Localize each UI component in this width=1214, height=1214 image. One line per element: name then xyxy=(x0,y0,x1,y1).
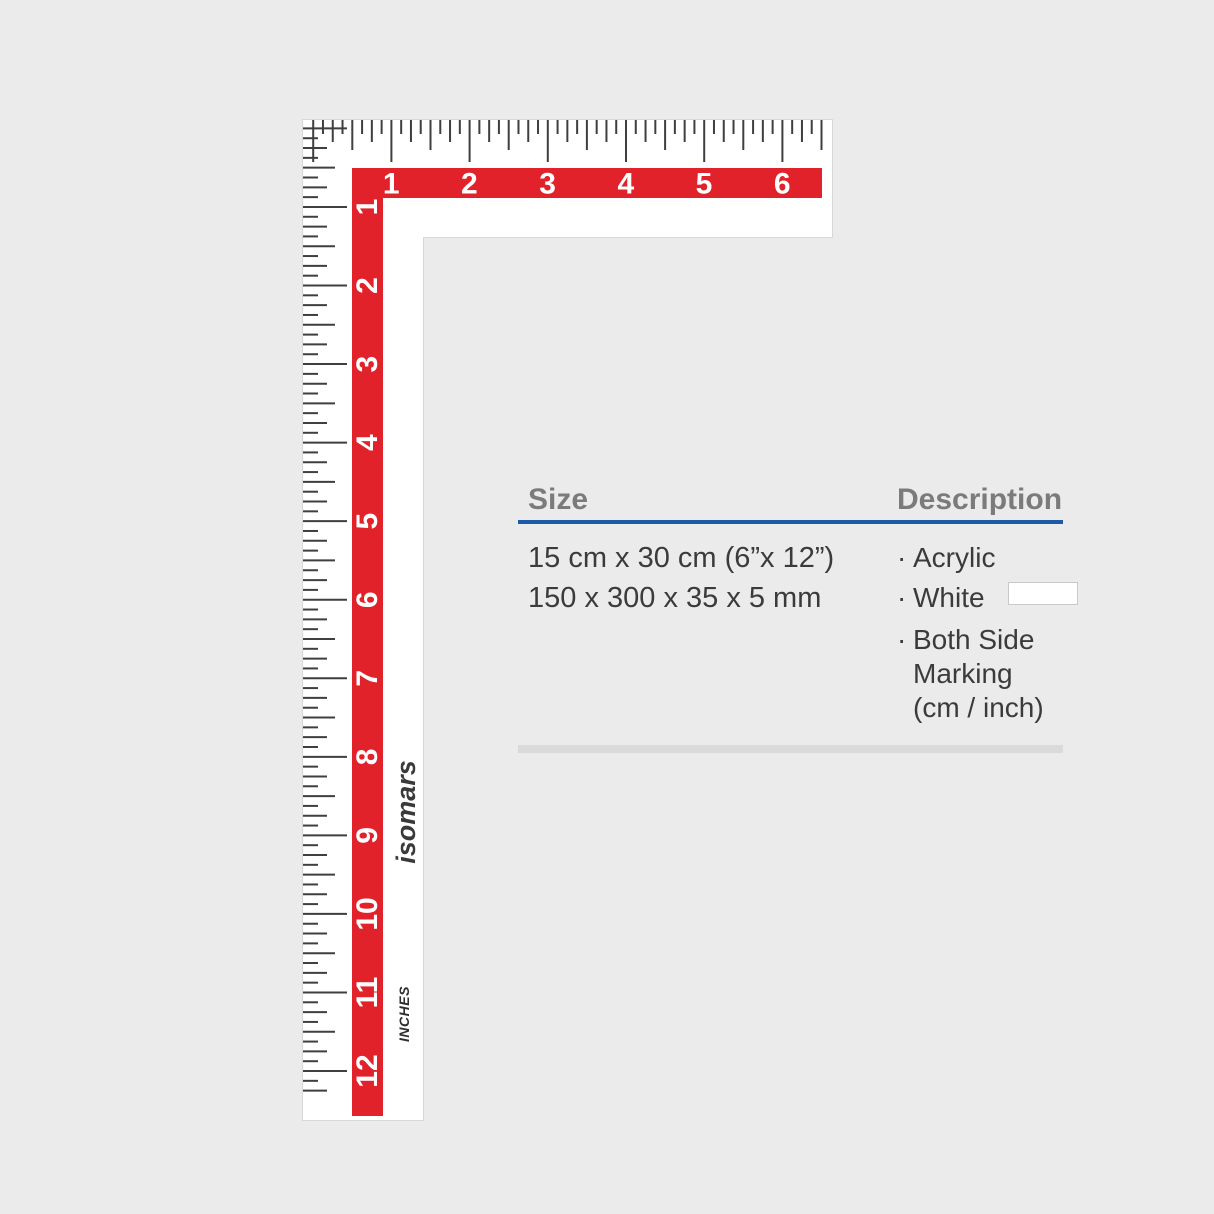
material-label: Acrylic xyxy=(913,538,995,578)
size-line-mm: 150 x 300 x 35 x 5 mm xyxy=(528,578,834,618)
brand-logo-text: isomars xyxy=(391,760,421,864)
marking-line: (cm / inch) xyxy=(913,691,1044,725)
ruler-number: 2 xyxy=(351,277,384,294)
marking-lines: Both Side Marking (cm / inch) xyxy=(913,623,1044,725)
ruler-number: 1 xyxy=(351,199,384,216)
bottom-divider xyxy=(518,745,1063,753)
size-values: 15 cm x 30 cm (6”x 12”) 150 x 300 x 35 x… xyxy=(528,538,834,618)
unit-label-text: INCHES xyxy=(396,986,412,1042)
marking-line: Both Side xyxy=(913,623,1044,657)
header-underline xyxy=(518,520,1063,524)
red-strip-vertical xyxy=(352,168,383,1116)
ruler-number: 3 xyxy=(351,356,384,373)
marking-line: Marking xyxy=(913,657,1044,691)
ruler-number: 2 xyxy=(461,168,478,201)
ruler-number: 6 xyxy=(351,591,384,608)
ruler-number: 7 xyxy=(351,670,384,687)
ruler-number: 8 xyxy=(351,749,384,766)
color-label: White xyxy=(913,578,985,618)
color-swatch xyxy=(1008,582,1078,605)
size-header: Size xyxy=(528,482,588,518)
bullet-dot: · xyxy=(897,623,913,725)
ruler-number: 5 xyxy=(696,168,713,201)
ruler-number: 1 xyxy=(383,168,400,201)
list-item-material: · Acrylic xyxy=(897,538,1044,578)
list-item-marking: · Both Side Marking (cm / inch) xyxy=(897,623,1044,725)
ruler-number: 9 xyxy=(351,827,384,844)
ruler-number: 5 xyxy=(351,513,384,530)
product-page: 123456 123456789101112 isomars INCHES Si… xyxy=(0,0,1214,1214)
red-strip-horizontal xyxy=(352,168,822,198)
ruler-number: 6 xyxy=(774,168,791,201)
ruler-number: 3 xyxy=(539,168,556,201)
ruler-number: 4 xyxy=(617,168,634,201)
ruler-number: 10 xyxy=(351,897,384,930)
ruler-number: 12 xyxy=(351,1054,384,1087)
ruler-number: 4 xyxy=(351,434,384,451)
ruler-number: 11 xyxy=(351,977,384,1009)
description-list: · Acrylic · White · Both Side Marking (c… xyxy=(897,538,1044,725)
spec-table: Size Description 15 cm x 30 cm (6”x 12”)… xyxy=(518,482,1064,772)
bullet-dot: · xyxy=(897,578,913,618)
description-header: Description xyxy=(897,482,1062,518)
bullet-dot: · xyxy=(897,538,913,578)
size-line-metric: 15 cm x 30 cm (6”x 12”) xyxy=(528,538,834,578)
